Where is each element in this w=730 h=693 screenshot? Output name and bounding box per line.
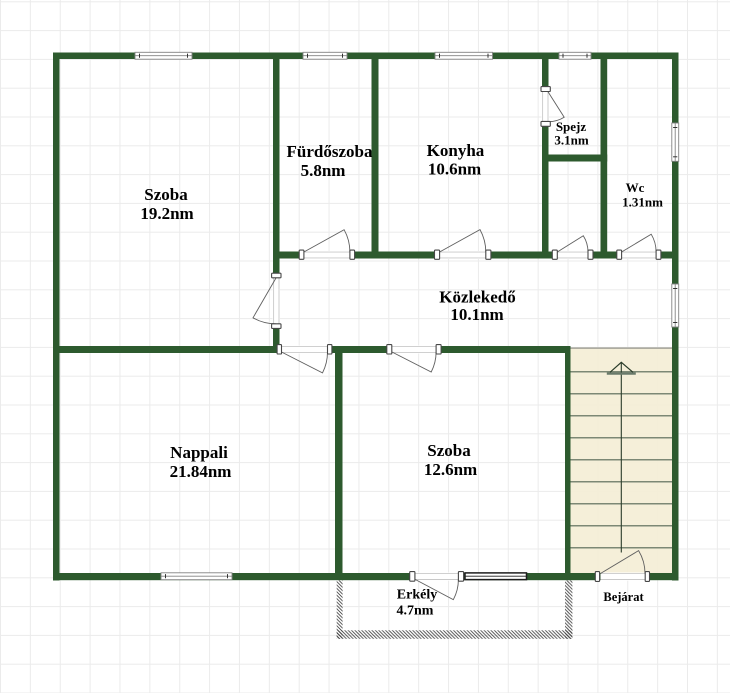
svg-text:5.8nm: 5.8nm (301, 161, 346, 180)
svg-text:Wc: Wc (626, 180, 645, 195)
svg-text:19.2nm: 19.2nm (140, 204, 193, 223)
svg-text:21.84nm: 21.84nm (170, 462, 232, 481)
svg-text:1.31nm: 1.31nm (622, 195, 663, 210)
svg-text:Szoba: Szoba (144, 185, 188, 204)
svg-text:Erkély: Erkély (397, 588, 437, 603)
svg-text:Szoba: Szoba (427, 441, 471, 460)
svg-text:Fürdőszoba: Fürdőszoba (287, 142, 373, 161)
svg-text:3.1nm: 3.1nm (554, 133, 588, 148)
svg-text:Bejárat: Bejárat (603, 590, 644, 604)
svg-text:Konyha: Konyha (427, 141, 485, 160)
svg-text:Közlekedő: Közlekedő (439, 288, 516, 307)
svg-text:10.6nm: 10.6nm (428, 160, 481, 179)
svg-text:12.6nm: 12.6nm (424, 460, 477, 479)
svg-text:4.7nm: 4.7nm (397, 604, 434, 619)
svg-text:10.1nm: 10.1nm (450, 305, 503, 324)
svg-text:Nappali: Nappali (170, 443, 228, 462)
